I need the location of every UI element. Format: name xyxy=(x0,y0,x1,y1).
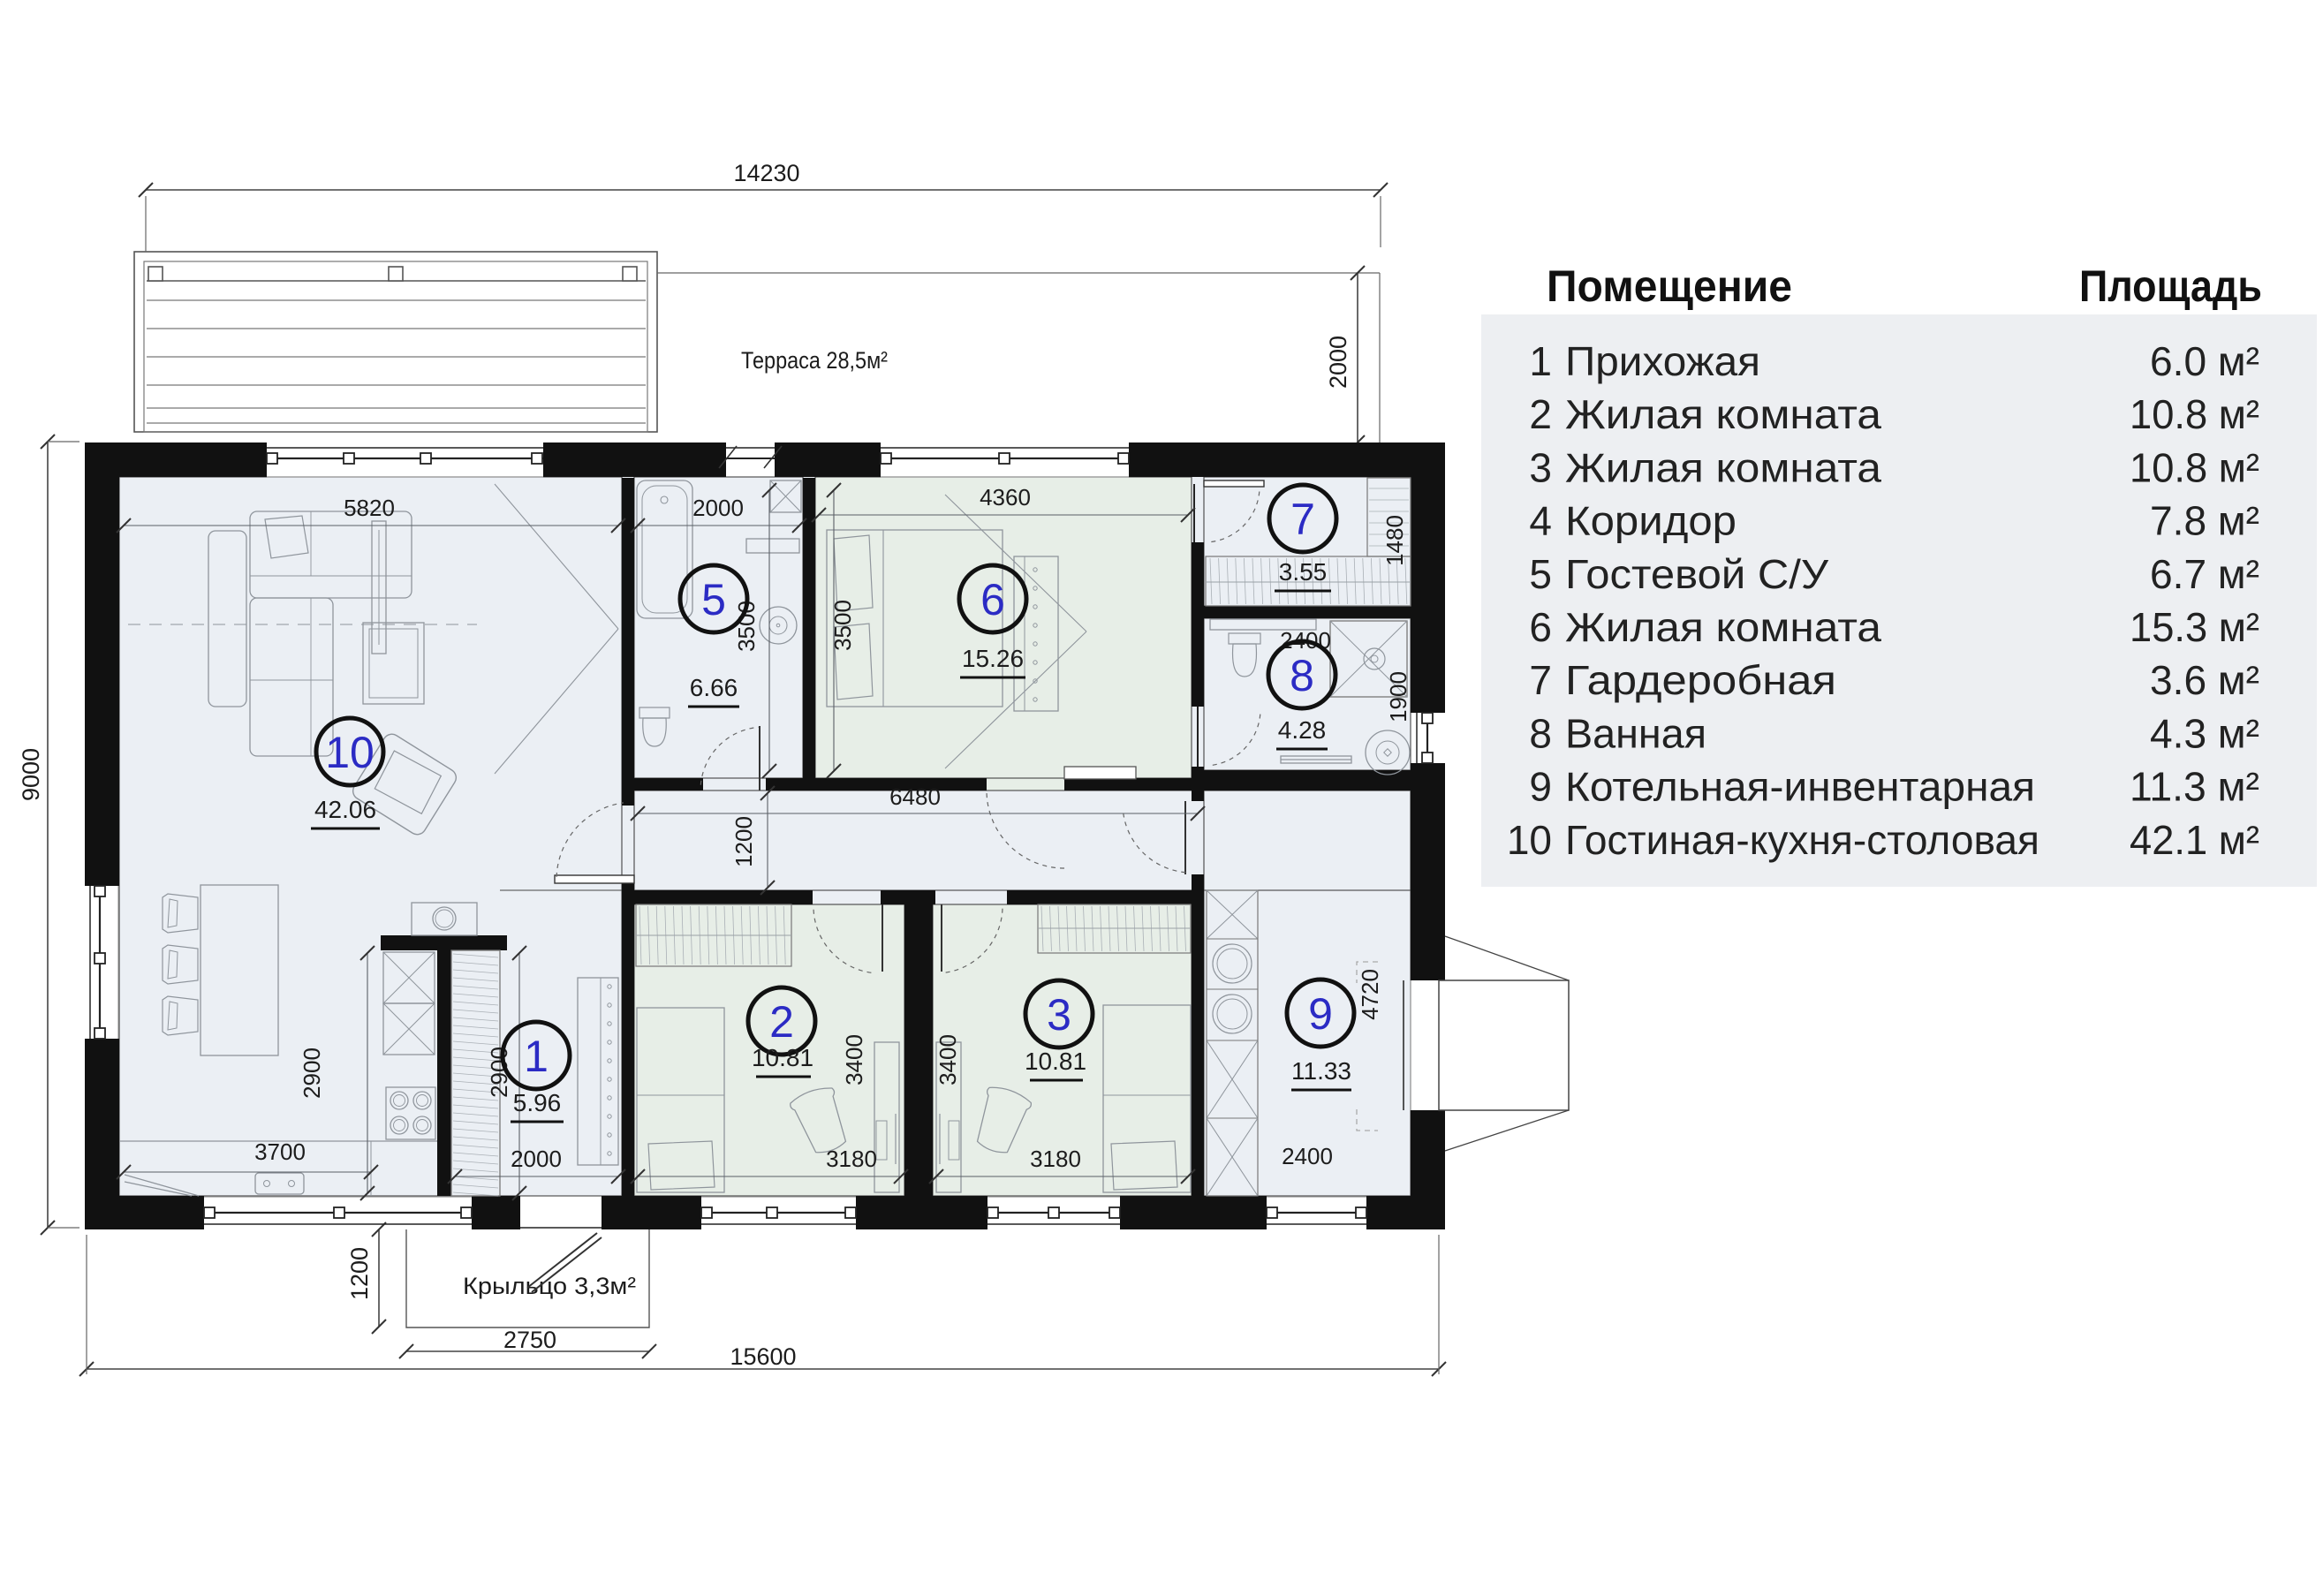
svg-text:9: 9 xyxy=(1308,989,1333,1039)
svg-text:3400: 3400 xyxy=(934,1034,961,1085)
svg-text:10.8 м²: 10.8 м² xyxy=(2130,391,2259,437)
svg-text:Прихожая: Прихожая xyxy=(1565,338,1760,384)
svg-text:7.8 м²: 7.8 м² xyxy=(2150,498,2259,544)
svg-text:3180: 3180 xyxy=(1030,1146,1081,1172)
svg-text:15.26: 15.26 xyxy=(962,645,1024,672)
svg-text:10: 10 xyxy=(325,728,375,777)
svg-text:7: 7 xyxy=(1290,495,1315,544)
svg-text:5: 5 xyxy=(701,575,726,624)
svg-text:6.7 м²: 6.7 м² xyxy=(2150,551,2259,597)
svg-text:Терраса 28,5м²: Терраса 28,5м² xyxy=(741,347,888,374)
svg-text:1200: 1200 xyxy=(346,1247,373,1300)
svg-text:Котельная-инвентарная: Котельная-инвентарная xyxy=(1565,764,2035,810)
svg-text:8: 8 xyxy=(1529,710,1552,756)
svg-text:3.6 м²: 3.6 м² xyxy=(2150,657,2259,703)
svg-text:2750: 2750 xyxy=(503,1327,556,1353)
svg-text:3500: 3500 xyxy=(829,600,856,651)
svg-text:2000: 2000 xyxy=(692,495,744,521)
svg-text:6.66: 6.66 xyxy=(690,674,738,701)
svg-text:11.33: 11.33 xyxy=(1291,1057,1351,1085)
svg-text:4720: 4720 xyxy=(1357,969,1383,1020)
svg-text:Коридор: Коридор xyxy=(1565,498,1737,544)
svg-text:Жилая комната: Жилая комната xyxy=(1565,604,1881,650)
svg-text:3: 3 xyxy=(1047,990,1071,1040)
svg-text:3: 3 xyxy=(1529,444,1552,490)
svg-text:10.81: 10.81 xyxy=(1025,1048,1086,1075)
svg-text:4.3 м²: 4.3 м² xyxy=(2150,710,2259,756)
svg-text:2000: 2000 xyxy=(511,1146,562,1172)
svg-text:4360: 4360 xyxy=(980,484,1031,511)
svg-text:5: 5 xyxy=(1529,551,1552,597)
svg-text:15600: 15600 xyxy=(730,1343,796,1370)
svg-text:6: 6 xyxy=(980,575,1005,624)
svg-text:2: 2 xyxy=(769,997,794,1047)
svg-text:14230: 14230 xyxy=(733,160,799,186)
svg-text:7: 7 xyxy=(1529,657,1552,703)
svg-text:3.55: 3.55 xyxy=(1279,558,1328,586)
svg-text:11.3 м²: 11.3 м² xyxy=(2130,764,2259,810)
svg-text:10.8 м²: 10.8 м² xyxy=(2130,444,2259,490)
svg-text:Площадь: Площадь xyxy=(2079,261,2262,311)
svg-text:10.81: 10.81 xyxy=(752,1044,813,1071)
svg-text:1: 1 xyxy=(1529,338,1552,384)
svg-text:Крыльцо 3,3м²: Крыльцо 3,3м² xyxy=(463,1273,636,1299)
svg-text:42.06: 42.06 xyxy=(314,796,376,823)
svg-text:5820: 5820 xyxy=(344,495,395,521)
svg-text:4.28: 4.28 xyxy=(1278,716,1327,744)
svg-text:9: 9 xyxy=(1529,764,1552,810)
svg-text:Жилая комната: Жилая комната xyxy=(1565,391,1881,437)
svg-text:4: 4 xyxy=(1529,498,1552,544)
svg-text:6: 6 xyxy=(1529,604,1552,650)
svg-text:Гардеробная: Гардеробная xyxy=(1565,657,1836,703)
svg-text:1900: 1900 xyxy=(1385,671,1411,722)
svg-text:10: 10 xyxy=(1507,817,1552,863)
svg-text:2000: 2000 xyxy=(1325,336,1351,389)
svg-text:Ванная: Ванная xyxy=(1565,710,1706,756)
svg-text:15.3 м²: 15.3 м² xyxy=(2130,604,2259,650)
svg-text:1: 1 xyxy=(524,1032,549,1081)
svg-text:Жилая комната: Жилая комната xyxy=(1565,444,1881,490)
svg-text:Гостевой С/У: Гостевой С/У xyxy=(1565,551,1829,597)
svg-text:3400: 3400 xyxy=(841,1034,867,1085)
svg-text:2900: 2900 xyxy=(299,1048,325,1099)
svg-text:6480: 6480 xyxy=(889,783,941,810)
svg-text:3700: 3700 xyxy=(254,1138,306,1165)
svg-text:42.1 м²: 42.1 м² xyxy=(2130,817,2259,863)
svg-text:Помещение: Помещение xyxy=(1547,261,1792,311)
svg-text:2400: 2400 xyxy=(1282,1143,1333,1169)
svg-text:8: 8 xyxy=(1290,651,1314,700)
svg-text:9000: 9000 xyxy=(18,748,44,801)
svg-text:6.0 м²: 6.0 м² xyxy=(2150,338,2259,384)
svg-text:Гостиная-кухня-столовая: Гостиная-кухня-столовая xyxy=(1565,817,2039,863)
svg-text:1200: 1200 xyxy=(730,816,757,867)
svg-text:1480: 1480 xyxy=(1381,515,1408,566)
svg-text:5.96: 5.96 xyxy=(513,1089,562,1116)
svg-text:3180: 3180 xyxy=(826,1146,877,1172)
svg-text:2: 2 xyxy=(1529,391,1552,437)
